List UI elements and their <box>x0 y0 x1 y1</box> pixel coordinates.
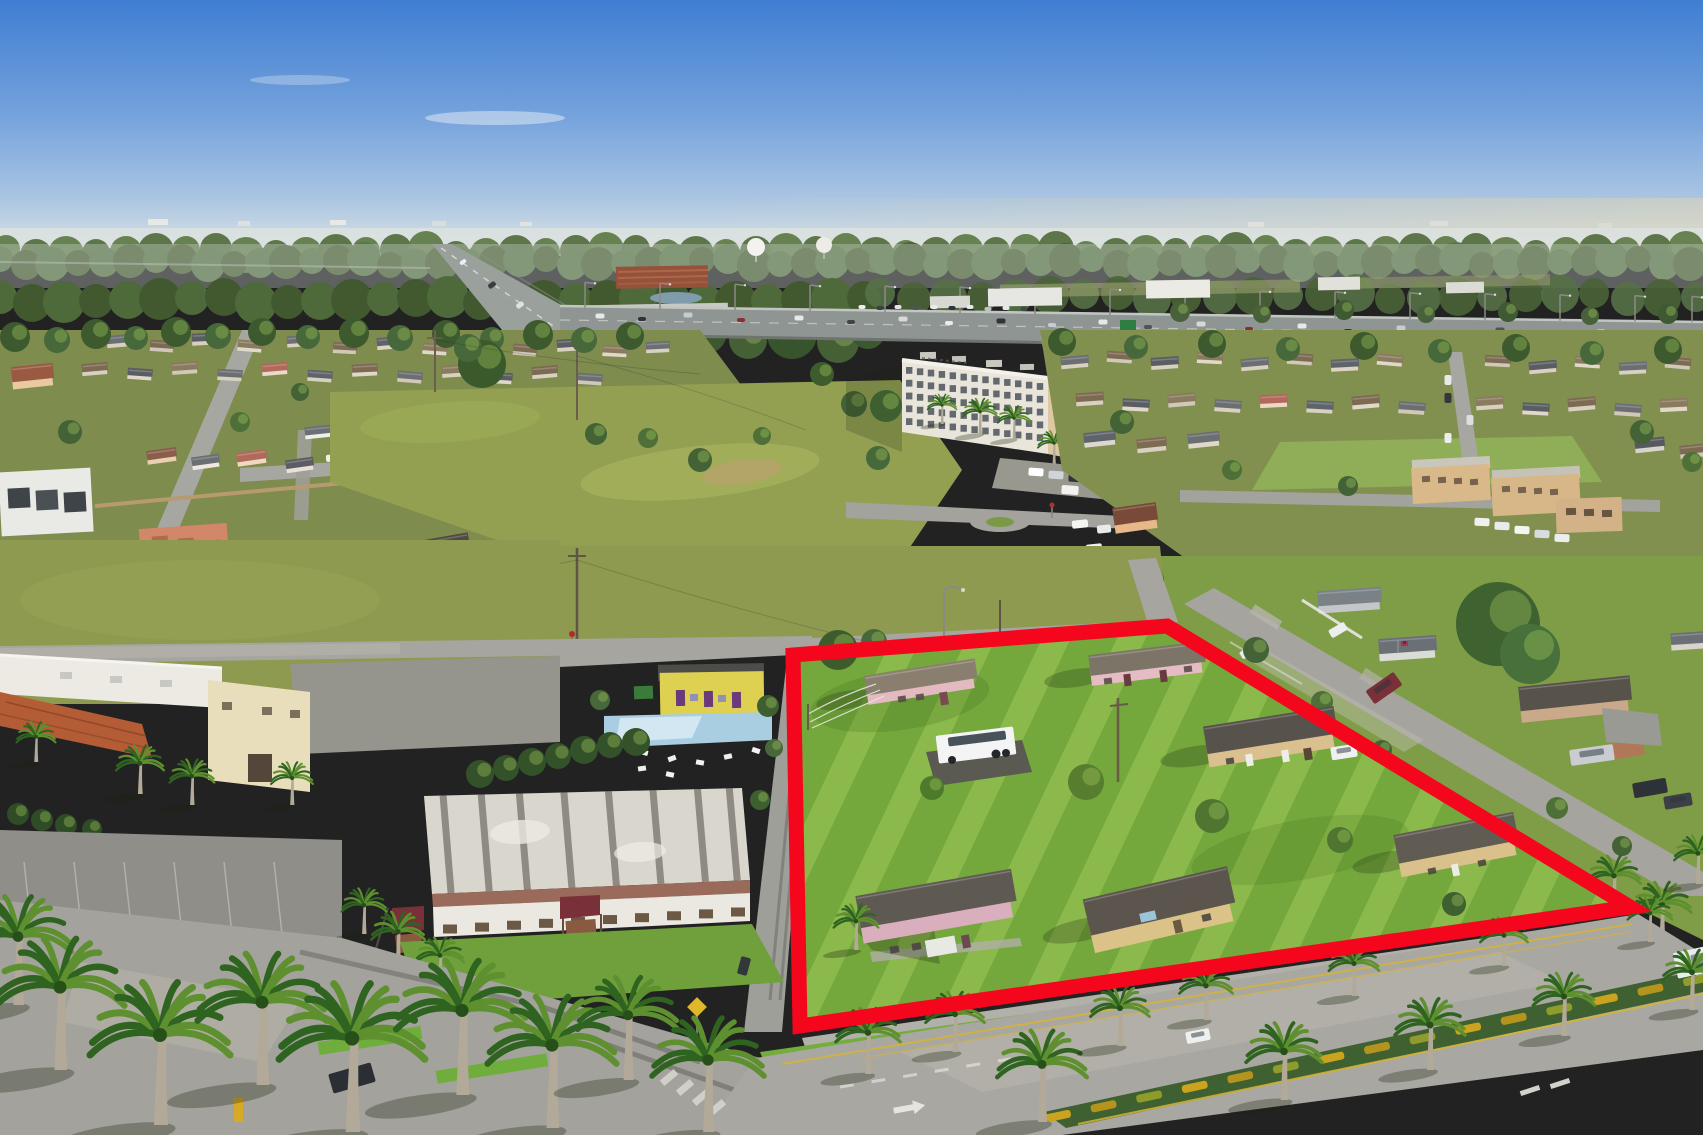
lamp-head <box>1419 293 1421 295</box>
house <box>352 363 379 376</box>
crown-center <box>54 981 67 994</box>
car-body <box>1467 415 1474 425</box>
hotel-window <box>971 413 977 420</box>
house <box>1351 394 1380 409</box>
tree-highlight <box>594 425 605 436</box>
hotel-window <box>928 382 934 389</box>
house <box>1151 356 1180 370</box>
tree-highlight <box>215 326 228 339</box>
house <box>646 341 671 353</box>
house <box>577 373 603 386</box>
vehicle <box>1028 467 1044 476</box>
cloud <box>250 75 350 85</box>
treeline-tree <box>1375 284 1405 314</box>
tree-highlight <box>930 778 942 790</box>
cloud <box>425 111 565 125</box>
house <box>1619 361 1648 374</box>
car-body <box>1048 323 1056 327</box>
car-body <box>985 307 992 311</box>
tree-highlight <box>535 323 550 338</box>
vehicle <box>1298 324 1307 329</box>
vehicle <box>931 305 938 309</box>
lamp-head <box>669 283 671 285</box>
tree-highlight <box>54 330 67 343</box>
car-body <box>931 305 938 309</box>
house-roof <box>646 341 670 350</box>
house <box>1670 631 1703 651</box>
car-body <box>1061 485 1079 495</box>
house <box>1614 403 1642 417</box>
palm-trunk <box>138 763 143 794</box>
commercial-building <box>1446 282 1484 294</box>
vehicle <box>985 307 992 311</box>
tree-highlight <box>40 811 51 822</box>
treeline-tree <box>427 276 469 318</box>
hotel-window <box>1026 382 1032 389</box>
wall-window <box>539 919 553 928</box>
car-body <box>949 306 956 310</box>
lamp-arm <box>1410 293 1419 294</box>
house <box>1240 357 1269 371</box>
house <box>1476 396 1505 411</box>
house <box>261 362 288 376</box>
gray-house <box>1317 587 1382 614</box>
wheel <box>1002 749 1010 757</box>
lamp-arm <box>960 287 969 288</box>
hotel-window <box>961 374 967 381</box>
tree-highlight <box>1361 335 1375 349</box>
tree-highlight <box>1059 331 1073 345</box>
treeline-tree <box>1579 278 1609 308</box>
vehicle <box>1003 306 1010 310</box>
crown-center <box>1502 933 1507 938</box>
apartment-building <box>1411 464 1491 504</box>
block <box>222 702 232 710</box>
house <box>1122 398 1150 411</box>
vehicle <box>1099 320 1108 325</box>
block <box>1602 510 1612 517</box>
treeline-tree <box>79 284 113 318</box>
house-roof <box>1122 398 1149 408</box>
right-suburb-layer <box>1040 328 1703 561</box>
house <box>172 361 199 375</box>
tree-highlight <box>397 328 410 341</box>
crown-center <box>1203 983 1208 988</box>
car-body <box>847 320 855 324</box>
tree-highlight <box>443 323 457 337</box>
lawn-chair <box>724 753 733 760</box>
tree-highlight <box>90 821 100 831</box>
radome-dome <box>747 238 765 256</box>
crown-center <box>395 929 400 934</box>
tree-highlight <box>238 414 248 424</box>
sky-layer <box>0 0 1703 256</box>
house <box>1398 401 1426 415</box>
vehicle <box>1445 375 1452 385</box>
wall-window <box>731 908 745 917</box>
roundabout-island <box>986 517 1014 527</box>
house-roof <box>1660 398 1688 408</box>
block <box>1584 509 1594 516</box>
car-body <box>1097 524 1112 533</box>
car-body <box>1445 393 1452 403</box>
vehicle <box>913 306 920 310</box>
crown-center <box>1117 1005 1123 1011</box>
house <box>1060 355 1089 369</box>
tree-highlight <box>1082 768 1100 786</box>
car-body <box>895 305 902 309</box>
door <box>1159 670 1167 683</box>
palm-trunk <box>1648 913 1652 942</box>
hotel-window <box>961 425 967 432</box>
block <box>916 693 925 700</box>
hotel-window <box>950 411 956 418</box>
two-story-house <box>11 363 55 390</box>
hotel-window <box>928 370 934 377</box>
wheel <box>948 756 956 764</box>
car-body <box>1028 467 1044 476</box>
lamp-head <box>744 284 746 286</box>
hotel-window <box>982 428 988 435</box>
vehicle <box>1144 325 1152 329</box>
house <box>1167 392 1196 407</box>
vehicle <box>899 317 908 322</box>
hotel-window <box>906 367 912 374</box>
tree-highlight <box>1424 307 1433 316</box>
car-body <box>997 319 1006 324</box>
rooftop-unit <box>1020 364 1034 370</box>
tree-highlight <box>698 450 710 462</box>
block <box>1502 486 1510 492</box>
road-marking <box>1550 1078 1571 1089</box>
house-roof <box>352 363 378 372</box>
lawn-chair <box>751 747 760 754</box>
lamp-head <box>1344 292 1346 294</box>
hotel-window <box>950 424 956 431</box>
lamp-arm <box>1692 296 1701 297</box>
vehicle <box>1445 433 1452 443</box>
hotel-window <box>917 368 923 375</box>
lamp-arm <box>810 285 819 286</box>
tree-highlight <box>306 327 318 339</box>
hotel-window <box>1026 433 1032 440</box>
house-roof <box>1522 402 1549 412</box>
distant-building <box>148 219 168 225</box>
tree-highlight <box>1590 343 1602 355</box>
distant-building <box>1248 222 1264 227</box>
hotel-window <box>971 375 977 382</box>
tree-highlight <box>607 735 620 748</box>
flag-canton <box>1403 641 1406 644</box>
car-body <box>1397 326 1406 331</box>
tree-highlight <box>12 325 27 340</box>
lamp-head <box>961 588 965 592</box>
car-body <box>1048 470 1064 479</box>
treeline-tree <box>865 278 895 308</box>
wall-window <box>443 925 457 934</box>
lamp-arm <box>1485 294 1494 295</box>
treeline-tree <box>43 281 85 323</box>
car-body <box>1072 519 1089 529</box>
lamp-head <box>1119 289 1121 291</box>
lamp-head <box>969 287 971 289</box>
tree-highlight <box>581 739 595 753</box>
lamp-arm <box>1110 289 1119 290</box>
hotel-window <box>1015 419 1021 426</box>
house <box>81 362 108 376</box>
crown-center <box>345 1031 360 1046</box>
block <box>1422 476 1430 482</box>
crown-center <box>455 1004 468 1017</box>
lamp-arm <box>585 282 594 283</box>
hotel-window <box>1037 409 1043 416</box>
house <box>1076 392 1105 407</box>
rooftop-unit <box>160 680 172 687</box>
house <box>217 369 243 381</box>
vehicle <box>1467 415 1474 425</box>
car-body <box>877 306 884 310</box>
tree-highlight <box>766 697 777 708</box>
tree-highlight <box>646 430 656 440</box>
tree-highlight <box>503 758 516 771</box>
car-body <box>1494 522 1509 531</box>
shed-bay <box>7 487 30 508</box>
hotel-window <box>961 386 967 393</box>
stop-sign <box>1050 503 1055 508</box>
house <box>1660 398 1689 412</box>
lamp-head <box>819 285 821 287</box>
tree-highlight <box>134 328 146 340</box>
van <box>1061 485 1079 495</box>
tree-highlight <box>16 805 27 816</box>
car-body <box>596 314 605 319</box>
tree-highlight <box>760 429 769 438</box>
block <box>690 694 698 701</box>
hotel-window <box>993 391 999 398</box>
hotel-window <box>906 418 912 425</box>
crown-center <box>1351 961 1356 966</box>
hotel-window <box>917 381 923 388</box>
distant-building <box>1598 223 1612 228</box>
tree-highlight <box>876 448 888 460</box>
tree-highlight <box>68 422 80 434</box>
house <box>1528 360 1557 374</box>
road-marking <box>1520 1085 1541 1096</box>
lamp-arm <box>735 284 744 285</box>
rooftop-unit <box>110 676 122 683</box>
tree-highlight <box>1337 830 1350 843</box>
commercial-building <box>1318 277 1360 291</box>
royal-palm-tree <box>158 759 214 814</box>
hotel-window <box>1026 395 1032 402</box>
purple-door <box>732 692 741 708</box>
car-body <box>1534 530 1549 539</box>
crown-center <box>978 410 981 413</box>
car-body <box>795 316 804 321</box>
vehicle <box>877 306 884 310</box>
tree-highlight <box>820 364 832 376</box>
block <box>262 707 272 715</box>
car-body <box>737 318 745 322</box>
hotel-window <box>939 384 945 391</box>
house <box>397 370 423 383</box>
vehicle <box>638 317 646 321</box>
crown-center <box>362 903 366 907</box>
crown-center <box>1696 851 1701 856</box>
tree-highlight <box>772 741 781 750</box>
crown-center <box>1012 416 1015 419</box>
tree-highlight <box>1286 339 1298 351</box>
house <box>1331 358 1360 371</box>
hotel-window <box>1004 392 1010 399</box>
car-body <box>1445 433 1452 443</box>
car-body <box>967 305 974 309</box>
dumpster <box>634 686 653 700</box>
tree-highlight <box>627 325 641 339</box>
vehicle <box>737 318 745 322</box>
tree-highlight <box>1438 341 1450 353</box>
block <box>718 695 726 702</box>
commercial-building <box>988 287 1062 306</box>
parking-lot <box>290 656 560 754</box>
hotel-window <box>906 393 912 400</box>
crown-center <box>290 776 294 780</box>
crown-center <box>153 1028 167 1042</box>
tree-highlight <box>1120 412 1132 424</box>
hotel-window <box>971 388 977 395</box>
wall-window <box>635 913 649 922</box>
palm-trunk <box>362 905 366 934</box>
crown-center <box>1689 969 1695 975</box>
wall-window <box>507 921 521 930</box>
shed-bay <box>35 489 58 510</box>
tree-highlight <box>1320 693 1331 704</box>
car-body <box>1445 375 1452 385</box>
house <box>1567 396 1596 411</box>
block <box>1470 479 1478 485</box>
vehicle <box>1097 524 1112 533</box>
wall-window <box>667 911 681 920</box>
house-roof <box>1331 358 1359 368</box>
wall-window <box>475 923 489 932</box>
car-body <box>1554 534 1569 543</box>
purple-door <box>704 691 713 707</box>
lamp-arm <box>885 286 894 287</box>
treeline-tree <box>175 281 209 315</box>
vehicle <box>684 313 693 318</box>
commercial-building <box>1146 279 1210 298</box>
car-body <box>1099 320 1108 325</box>
block <box>1438 477 1446 483</box>
treeline-tree <box>367 282 401 316</box>
tree-highlight <box>259 321 273 335</box>
rooftop-unit <box>986 360 1002 367</box>
lawn-chair <box>666 771 675 778</box>
crown-center <box>854 919 858 923</box>
vehicle <box>1494 522 1509 531</box>
tree-highlight <box>1513 337 1527 351</box>
treeline-tree <box>1611 282 1645 316</box>
hotel-window <box>1037 421 1043 428</box>
car-body <box>1197 322 1206 327</box>
tree-highlight <box>883 393 899 409</box>
hotel-window <box>917 394 923 401</box>
tree-highlight <box>1346 478 1356 488</box>
hotel-window <box>1015 432 1021 439</box>
house-roof <box>217 369 242 378</box>
distant-building <box>238 221 250 226</box>
house <box>1214 399 1242 413</box>
lamp-head <box>1494 294 1496 296</box>
block <box>1518 487 1526 493</box>
car-body <box>1514 526 1529 535</box>
aerial-property-photo <box>0 0 1703 1135</box>
hotel-window <box>1015 380 1021 387</box>
hotel-window <box>982 376 988 383</box>
block <box>1226 757 1235 764</box>
tree-highlight <box>1666 306 1676 316</box>
hotel-window <box>950 385 956 392</box>
vehicle <box>1197 322 1206 327</box>
hotel-window <box>917 407 923 414</box>
crown-center <box>1038 1060 1047 1069</box>
hotel-window <box>917 420 923 427</box>
aerial-photo-canvas <box>0 0 1703 1135</box>
lamp-head <box>1269 291 1271 293</box>
vehicle <box>859 305 866 309</box>
hotel-window <box>1004 379 1010 386</box>
stop-sign <box>569 631 575 637</box>
vehicle <box>1554 534 1569 543</box>
lamp-head <box>1644 295 1646 297</box>
tree-highlight <box>1620 838 1630 848</box>
lamp-head <box>894 286 896 288</box>
block <box>1184 666 1193 673</box>
tree-highlight <box>633 731 647 745</box>
hotel-window <box>993 429 999 436</box>
distant-building <box>1430 221 1448 226</box>
hotel-window <box>939 371 945 378</box>
crown-center <box>438 953 443 958</box>
house <box>531 365 558 379</box>
block <box>1550 489 1558 495</box>
treeline-tree <box>271 285 305 319</box>
tree-highlight <box>1260 307 1269 316</box>
purple-door <box>676 690 685 706</box>
distant-building <box>432 221 446 226</box>
car-body <box>638 317 646 321</box>
tree-highlight <box>1230 462 1240 472</box>
tree-highlight <box>1588 309 1597 318</box>
vehicle <box>1474 518 1489 527</box>
tree-highlight <box>1253 640 1266 653</box>
vehicle <box>1072 519 1089 529</box>
house-roof <box>1260 394 1288 404</box>
tree-highlight <box>298 385 307 394</box>
treeline-tree <box>331 279 373 321</box>
palm-trunk <box>190 776 194 805</box>
vehicle <box>1534 530 1549 539</box>
tree-highlight <box>1640 422 1652 434</box>
tree-highlight <box>1690 454 1700 464</box>
tree-highlight <box>1209 802 1226 819</box>
lamp-head <box>1569 295 1571 297</box>
vehicle <box>1048 323 1056 327</box>
crown-center <box>865 1029 871 1035</box>
tree-highlight <box>598 692 608 702</box>
house <box>1260 394 1289 408</box>
vehicle <box>945 321 953 325</box>
